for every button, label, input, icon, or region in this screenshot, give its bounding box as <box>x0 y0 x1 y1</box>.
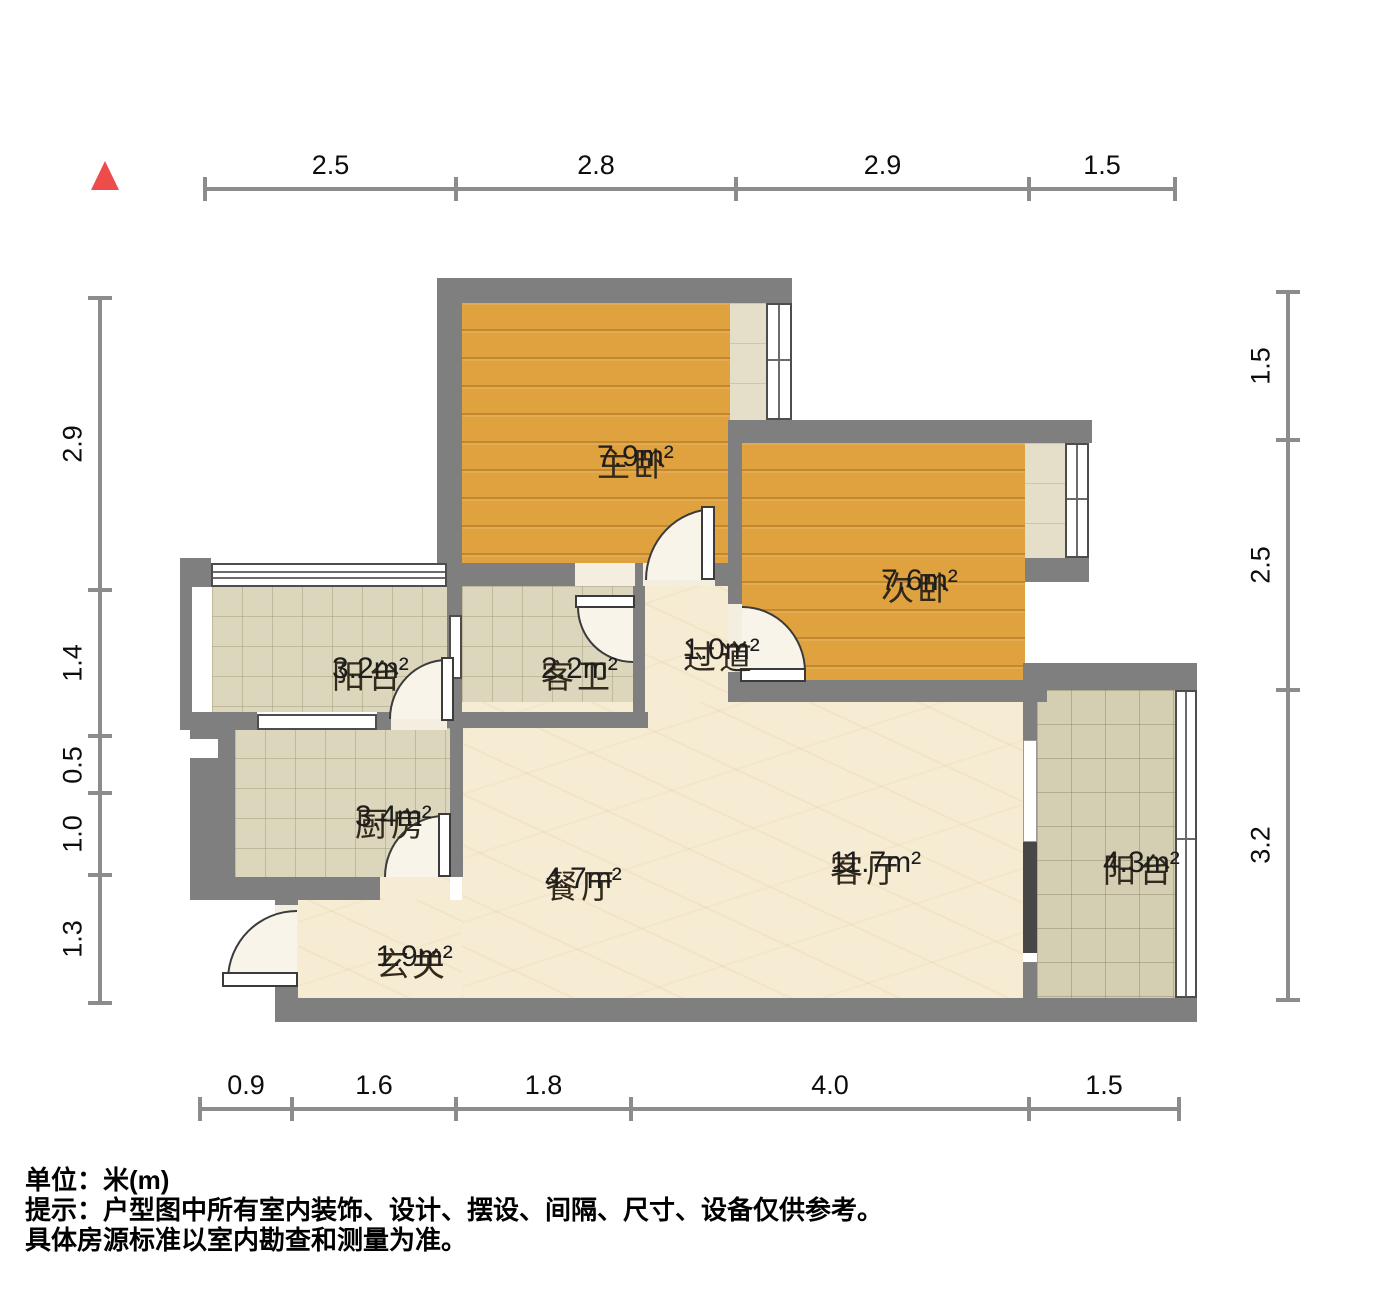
dim-value-left: 1.3 <box>58 920 89 958</box>
dim-value-right: 1.5 <box>1246 347 1277 385</box>
dim-tick-bottom <box>629 1097 633 1121</box>
dim-tick-left <box>88 1001 112 1005</box>
dim-tick-top <box>454 177 458 201</box>
dim-tick-left <box>88 873 112 877</box>
floor-plan: 主卧7.9m²次卧7.6m²阳台3.2m²客卫2.2m²过道1.0m²厨房3.4… <box>0 0 1387 1300</box>
dim-value-bottom: 1.5 <box>1085 1070 1123 1101</box>
dim-tick-top <box>734 177 738 201</box>
dim-tick-right <box>1276 438 1300 442</box>
dim-tick-left <box>88 791 112 795</box>
dim-value-top: 2.9 <box>864 150 902 181</box>
dim-value-left: 0.5 <box>58 746 89 784</box>
dim-value-right: 3.2 <box>1246 826 1277 864</box>
dim-tick-top <box>1027 177 1031 201</box>
dim-tick-left <box>88 588 112 592</box>
dim-tick-bottom <box>454 1097 458 1121</box>
dim-line-right <box>1286 292 1290 1000</box>
dim-tick-right <box>1276 688 1300 692</box>
dim-tick-bottom <box>198 1097 202 1121</box>
dim-value-top: 2.5 <box>312 150 350 181</box>
dim-tick-right <box>1276 998 1300 1002</box>
dim-tick-top <box>203 177 207 201</box>
dim-value-left: 2.9 <box>58 425 89 463</box>
dim-tick-bottom <box>290 1097 294 1121</box>
dim-tick-left <box>88 734 112 738</box>
dim-value-bottom: 0.9 <box>227 1070 265 1101</box>
dim-value-top: 1.5 <box>1083 150 1121 181</box>
dim-value-left: 1.4 <box>58 644 89 682</box>
dim-tick-left <box>88 296 112 300</box>
dim-tick-bottom <box>1027 1097 1031 1121</box>
tip-note-line2: 具体房源标准以室内勘查和测量为准。 <box>25 1220 467 1257</box>
dim-line-left <box>98 298 102 1003</box>
dim-tick-right <box>1276 290 1300 294</box>
dim-value-left: 1.0 <box>58 815 89 853</box>
dim-tick-top <box>1173 177 1177 201</box>
dim-value-bottom: 1.6 <box>355 1070 393 1101</box>
dim-value-bottom: 1.8 <box>525 1070 563 1101</box>
dim-line-bottom <box>200 1107 1179 1111</box>
dim-tick-bottom <box>1177 1097 1181 1121</box>
dim-value-bottom: 4.0 <box>811 1070 849 1101</box>
dimension-lines: 2.52.82.91.50.91.61.84.01.52.91.40.51.01… <box>0 0 1387 1300</box>
dim-value-top: 2.8 <box>577 150 615 181</box>
dim-value-right: 2.5 <box>1246 546 1277 584</box>
